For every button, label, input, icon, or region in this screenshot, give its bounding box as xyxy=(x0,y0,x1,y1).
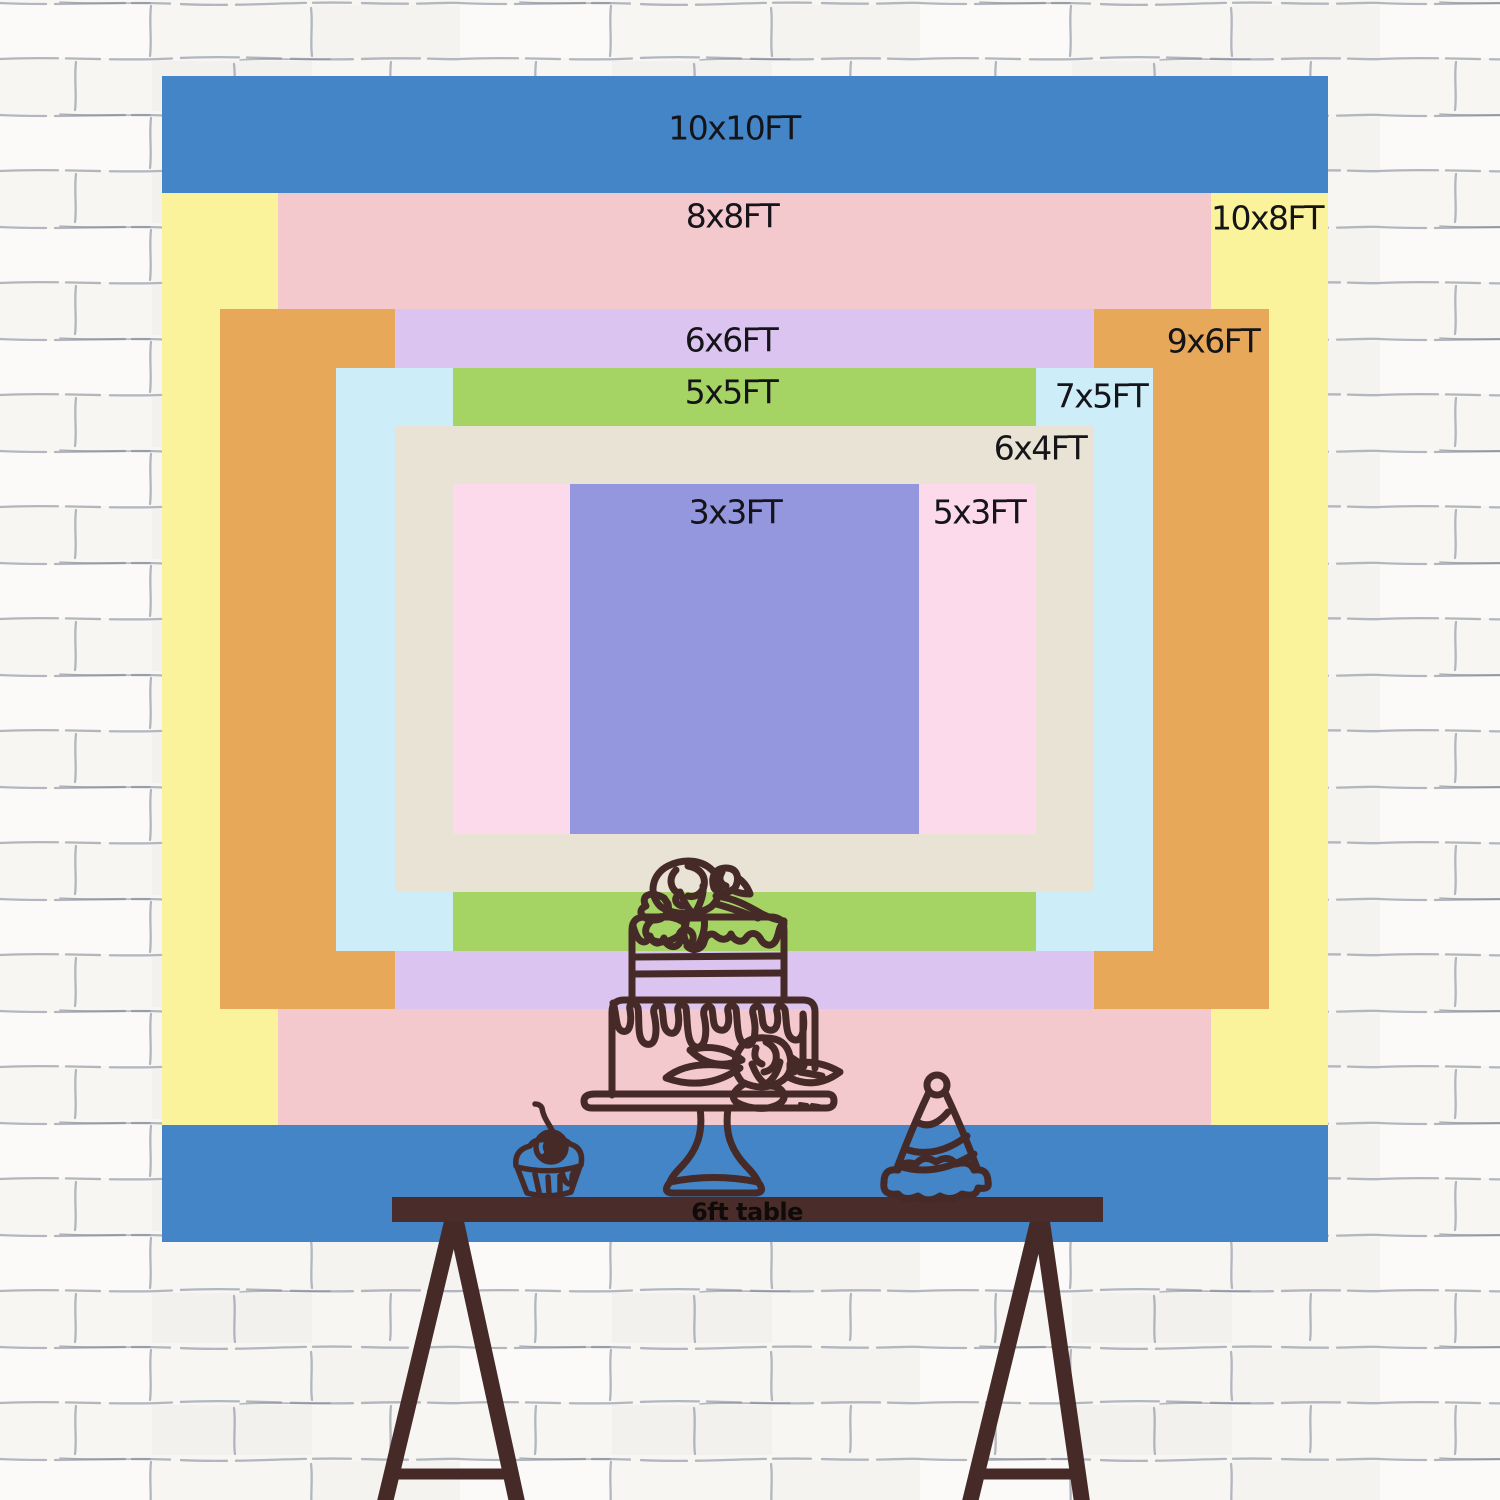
party-hat-icon xyxy=(884,1075,989,1200)
table-label: 6ft table xyxy=(691,1198,803,1226)
table-leg-left xyxy=(385,1222,517,1500)
birthday-cake-icon xyxy=(584,861,840,1193)
cupcake-icon xyxy=(516,1104,582,1196)
table-leg-right xyxy=(970,1222,1082,1500)
backdrop-size-chart-scene: 10x10FT10x8FT8x8FT9x6FT6x6FT7x5FT5x5FT6x… xyxy=(0,0,1500,1500)
table-and-decorations xyxy=(0,0,1500,1500)
